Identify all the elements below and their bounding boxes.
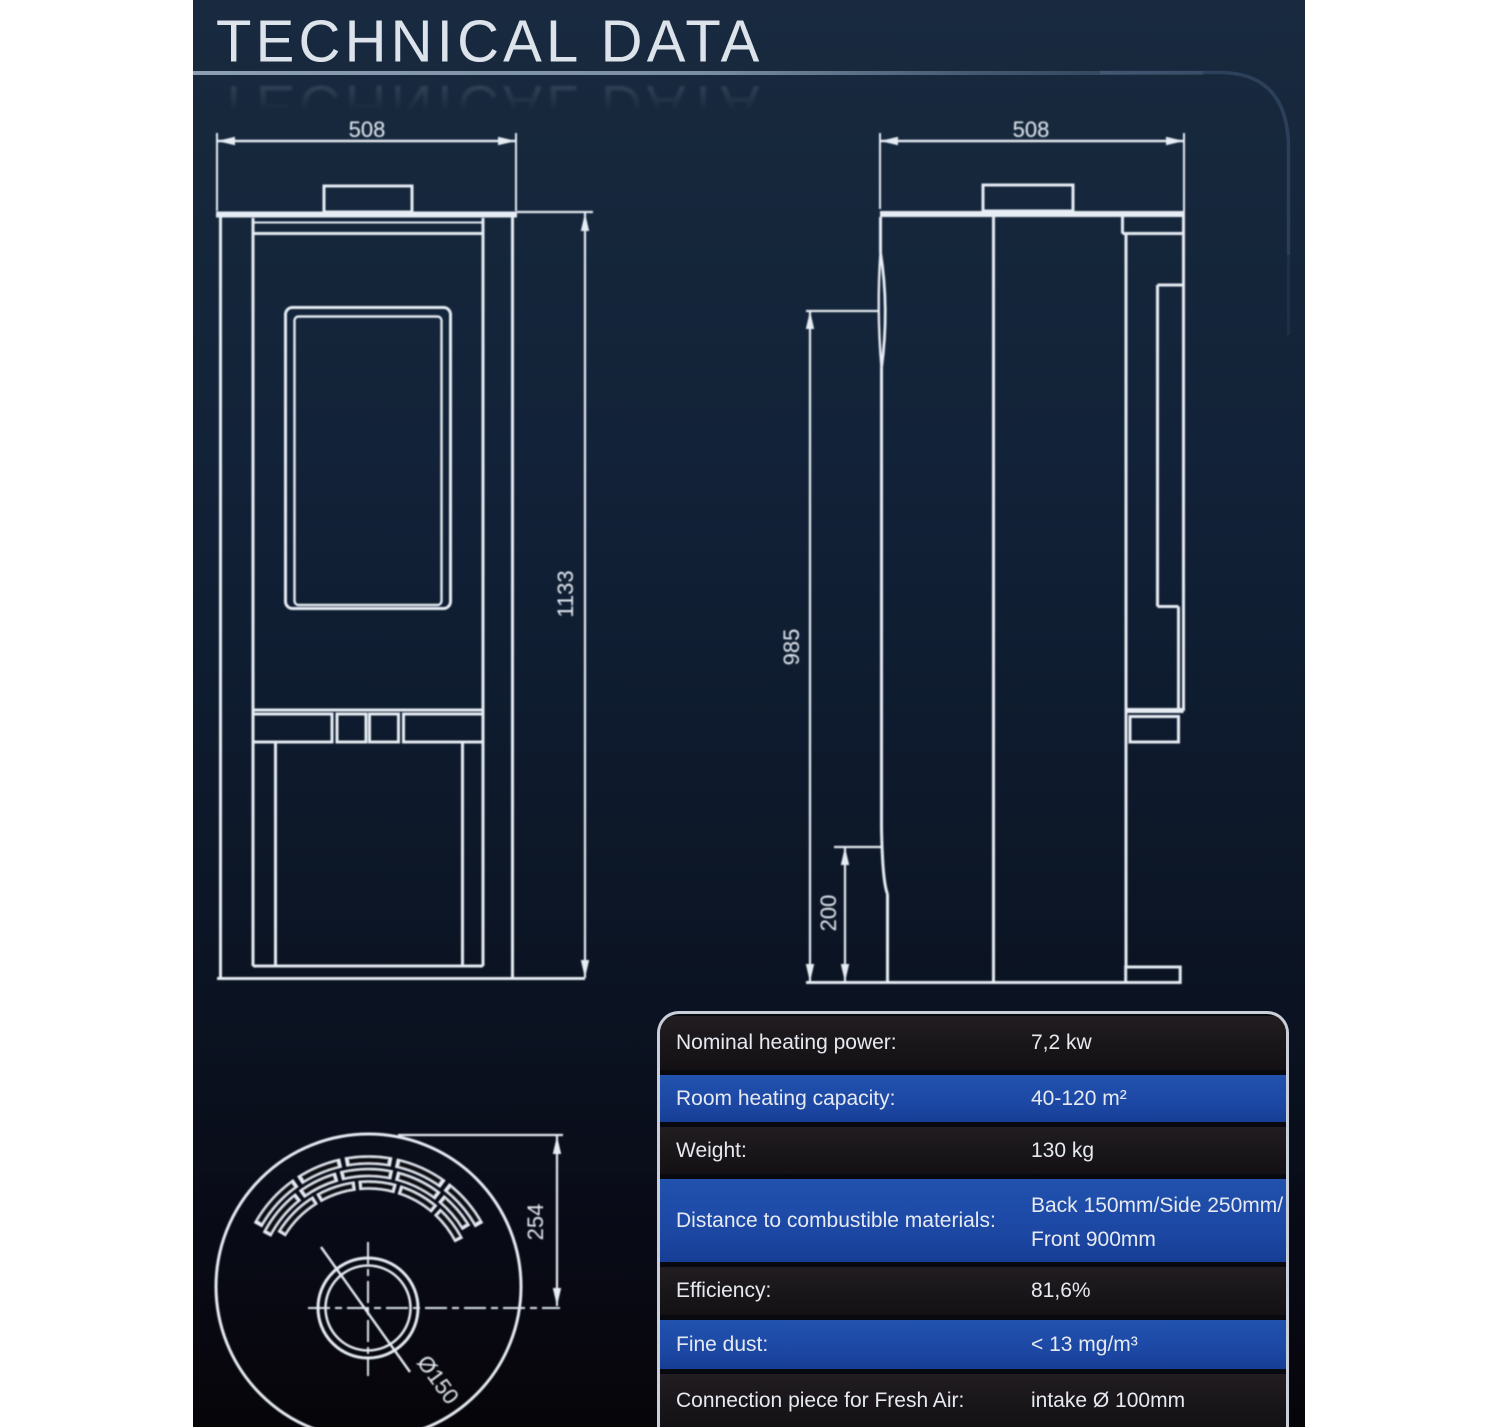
svg-text:1133: 1133 [553, 570, 578, 617]
svg-text:508: 508 [1013, 117, 1050, 142]
svg-text:200: 200 [816, 895, 841, 932]
svg-text:254: 254 [523, 1204, 548, 1241]
svg-text:Ø150: Ø150 [412, 1350, 464, 1408]
svg-text:985: 985 [779, 629, 804, 666]
svg-text:508: 508 [349, 117, 386, 142]
